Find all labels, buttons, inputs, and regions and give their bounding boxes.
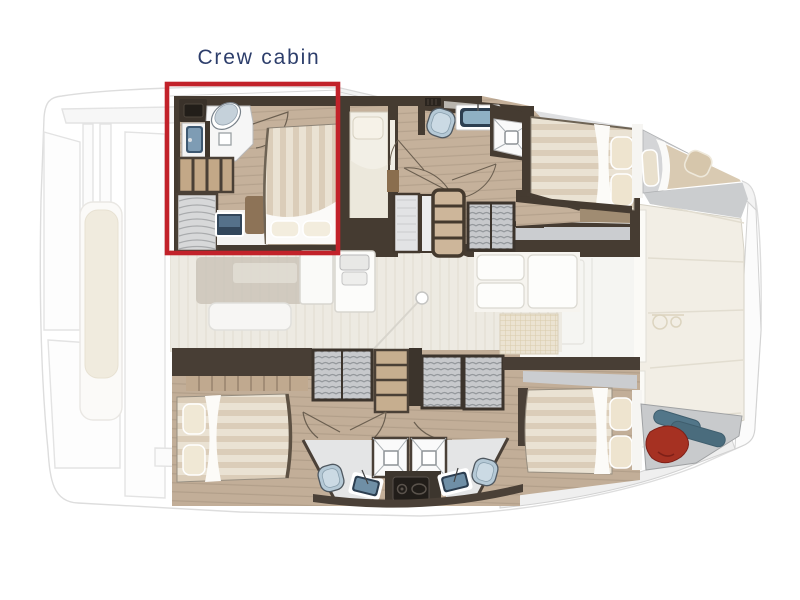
svg-text:Crew cabin: Crew cabin (197, 46, 320, 69)
